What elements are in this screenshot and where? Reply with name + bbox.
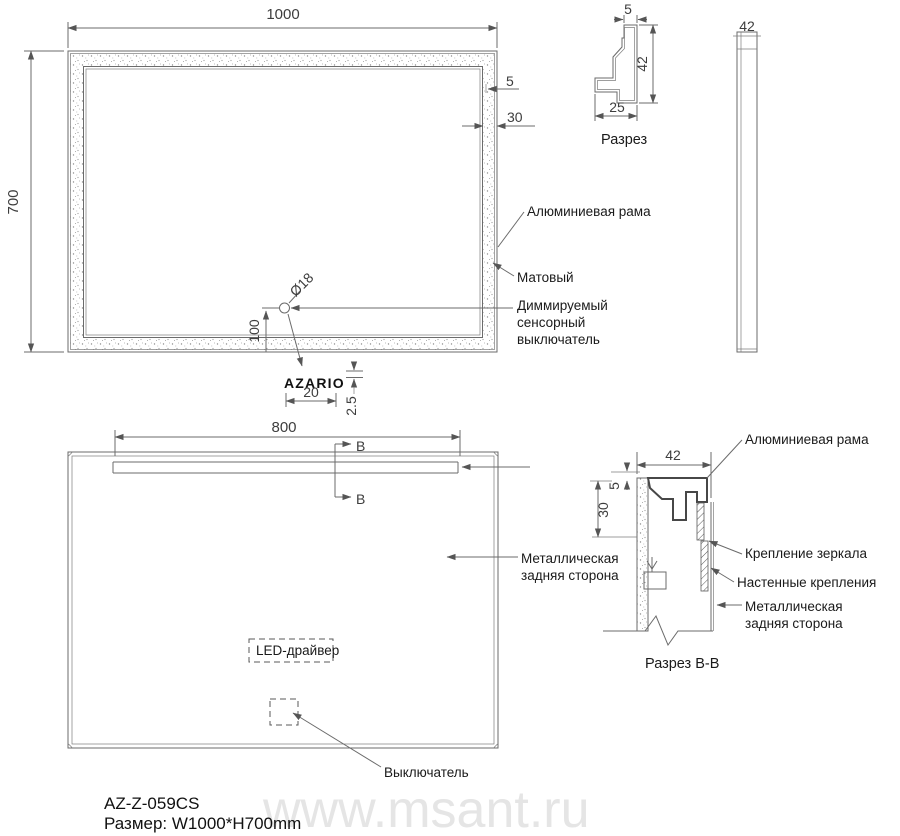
front-frame-leader xyxy=(498,212,524,247)
switch-box xyxy=(270,699,298,725)
front-frame-stipple xyxy=(70,53,495,350)
front-dim-height-text: 700 xyxy=(5,189,22,214)
profile-dim-top: 5 xyxy=(614,1,647,23)
side-outline xyxy=(737,32,757,352)
back-label-back-1: Металлическая xyxy=(521,551,619,566)
front-dim-width-text: 1000 xyxy=(266,6,299,23)
back-inner-edge xyxy=(72,456,494,744)
section-label-back-2: задняя сторона xyxy=(745,616,843,631)
back-label-back-2: задняя сторона xyxy=(521,568,619,583)
section-mirror-glass xyxy=(637,478,648,631)
profile-section-view: 5 42 25 Разрез xyxy=(595,1,658,148)
profile-dim-top-text: 5 xyxy=(624,1,632,17)
front-label-switch-1: Диммируемый xyxy=(517,298,608,313)
break-line xyxy=(603,616,713,645)
profile-dim-width-text: 25 xyxy=(609,99,625,115)
footer: AZ-Z-059CS Размер: W1000*H700mm xyxy=(104,794,301,833)
front-dim-edge-text: 5 xyxy=(506,73,514,89)
front-dim-logo-gap: 2.5 xyxy=(343,362,363,416)
back-outer-edge xyxy=(68,452,498,748)
front-dim-logo-width-text: 20 xyxy=(303,384,319,400)
section-dim-edge: 5 xyxy=(606,463,640,490)
section-label-mirror-mount: Крепление зеркала xyxy=(745,546,867,561)
technical-drawing-page: www.msant.ru xyxy=(0,0,900,836)
side-dim-depth-text: 42 xyxy=(739,18,755,34)
front-dim-height: 700 xyxy=(5,51,64,352)
front-label-matte: Матовый xyxy=(517,270,574,285)
mirror-mount-leader xyxy=(709,541,742,554)
profile-inner-line xyxy=(598,28,635,101)
section-bb-view: 42 5 30 Алюминиевая рама Крепление зерка… xyxy=(590,432,876,672)
mirror-outer-edge xyxy=(68,51,497,352)
section-marker-bottom: B xyxy=(356,491,365,507)
profile-caption: Разрез xyxy=(601,132,648,148)
section-caption: Разрез B-B xyxy=(645,656,719,672)
back-dim-led: 800 xyxy=(115,419,460,456)
front-dim-frame: 30 xyxy=(462,109,535,126)
wall-mount-leader xyxy=(711,568,734,582)
size-caption: Размер: W1000*H700mm xyxy=(104,814,301,833)
back-label-switch: Выключатель xyxy=(384,765,469,780)
model-number: AZ-Z-059CS xyxy=(104,794,199,813)
front-label-frame: Алюминиевая рама xyxy=(527,204,651,219)
section-marker-top: B xyxy=(356,438,365,454)
sensor-switch-circle xyxy=(280,303,290,313)
front-dim-width: 1000 xyxy=(68,6,497,48)
mirror-edge-line xyxy=(71,54,495,350)
front-label-switch-2: сенсорный xyxy=(517,315,585,330)
mirror-mount-strip xyxy=(697,503,704,540)
mirror-inner-line xyxy=(86,69,480,335)
switch-leader xyxy=(293,713,381,767)
led-driver-label: LED-драйвер xyxy=(256,643,339,658)
drawing-svg: 1000 700 5 30 Ø xyxy=(0,0,900,836)
matte-leader xyxy=(493,263,514,276)
profile-outline xyxy=(595,25,637,103)
led-strip xyxy=(113,462,458,473)
section-dim-edge-text: 5 xyxy=(606,482,622,490)
section-frame-leader xyxy=(707,440,742,478)
section-dim-depth-text: 30 xyxy=(595,502,611,518)
back-dim-led-text: 800 xyxy=(271,419,296,436)
front-dim-switch-offset-text: 100 xyxy=(246,319,262,343)
section-dim-width-text: 42 xyxy=(665,447,681,463)
wall-mount-strip xyxy=(701,541,708,591)
mirror-inner-edge xyxy=(84,67,483,338)
profile-dim-width: 25 xyxy=(595,94,637,121)
section-label-back-1: Металлическая xyxy=(745,599,843,614)
section-label-frame: Алюминиевая рама xyxy=(745,432,869,447)
front-view: 1000 700 5 30 Ø xyxy=(5,6,651,416)
back-view: 800 B B Металлическая задняя сторона LED… xyxy=(68,419,619,780)
front-dim-frame-text: 30 xyxy=(507,109,523,125)
front-label-switch-3: выключатель xyxy=(517,332,600,347)
front-dim-logo-gap-text: 2.5 xyxy=(343,396,359,416)
profile-dim-height: 42 xyxy=(634,25,658,103)
side-view: 42 xyxy=(733,18,761,352)
switch-dia-text: Ø18 xyxy=(286,269,316,299)
profile-dim-height-text: 42 xyxy=(634,56,650,72)
section-label-wall-mount: Настенные крепления xyxy=(737,575,876,590)
